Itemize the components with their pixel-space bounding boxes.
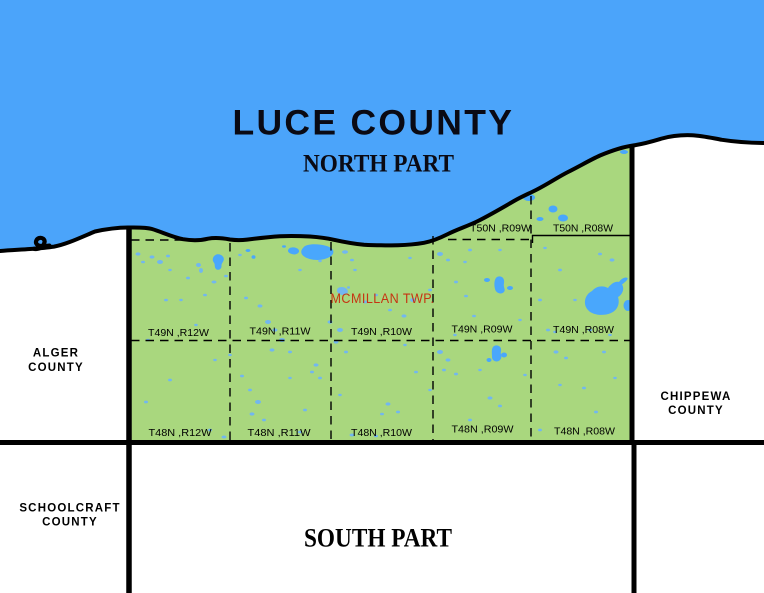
svg-text:ALGER: ALGER [33, 348, 79, 360]
svg-text:T50N ,R09W: T50N ,R09W [470, 223, 531, 235]
svg-text:COUNTY: COUNTY [42, 517, 98, 529]
svg-text:T49N ,R08W: T49N ,R08W [553, 324, 614, 336]
svg-text:T48N ,R12W: T48N ,R12W [149, 427, 212, 439]
svg-text:T48N ,R09W: T48N ,R09W [452, 424, 514, 436]
svg-text:T49N ,R11W: T49N ,R11W [250, 326, 311, 338]
svg-text:SOUTH PART: SOUTH PART [304, 524, 452, 553]
svg-text:SCHOOLCRAFT: SCHOOLCRAFT [19, 503, 120, 515]
svg-text:COUNTY: COUNTY [668, 405, 724, 417]
svg-text:T48N ,R11W: T48N ,R11W [248, 427, 311, 439]
svg-text:T50N ,R08W: T50N ,R08W [553, 223, 613, 235]
svg-text:T48N ,R08W: T48N ,R08W [554, 426, 615, 438]
svg-text:T49N ,R12W: T49N ,R12W [148, 327, 209, 339]
svg-text:T48N ,R10W: T48N ,R10W [351, 427, 412, 439]
svg-text:COUNTY: COUNTY [28, 362, 84, 374]
svg-text:CHIPPEWA: CHIPPEWA [661, 391, 732, 403]
svg-text:LUCE COUNTY: LUCE COUNTY [233, 102, 515, 142]
svg-text:MCMILLAN TWP.: MCMILLAN TWP. [331, 291, 435, 306]
svg-text:T49N ,R09W: T49N ,R09W [452, 324, 513, 336]
svg-text:NORTH PART: NORTH PART [303, 149, 454, 178]
svg-text:T49N ,R10W: T49N ,R10W [351, 326, 412, 338]
